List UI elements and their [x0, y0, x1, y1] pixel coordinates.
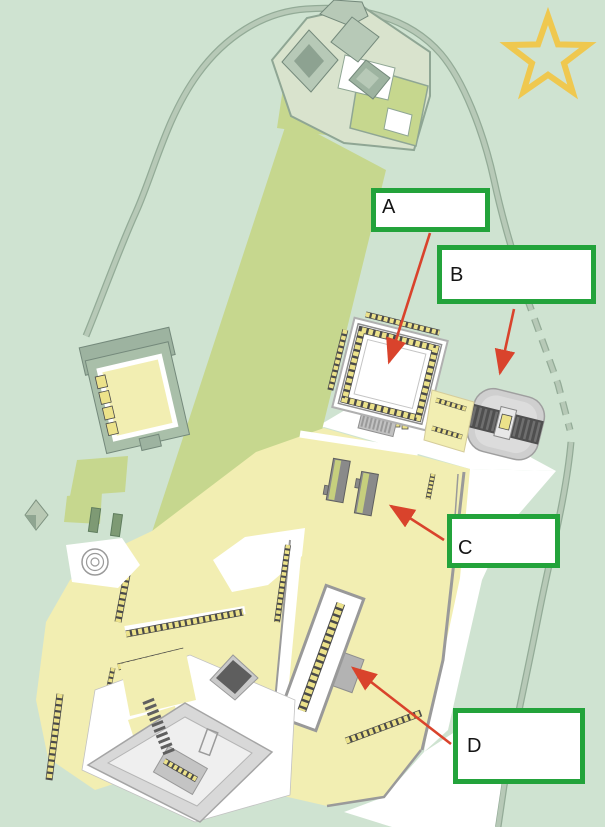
answer-box-c[interactable]: C — [447, 514, 560, 568]
answer-box-d[interactable]: D — [453, 708, 585, 784]
label-letter-c: C — [458, 538, 472, 558]
site-map-slide: A B C D — [0, 0, 605, 827]
label-letter-a: A — [382, 197, 395, 217]
answer-box-b[interactable]: B — [437, 245, 596, 304]
site-map — [0, 0, 605, 827]
answer-box-a[interactable]: A — [371, 188, 490, 232]
label-letter-d: D — [467, 736, 481, 756]
label-letter-b: B — [450, 265, 463, 285]
